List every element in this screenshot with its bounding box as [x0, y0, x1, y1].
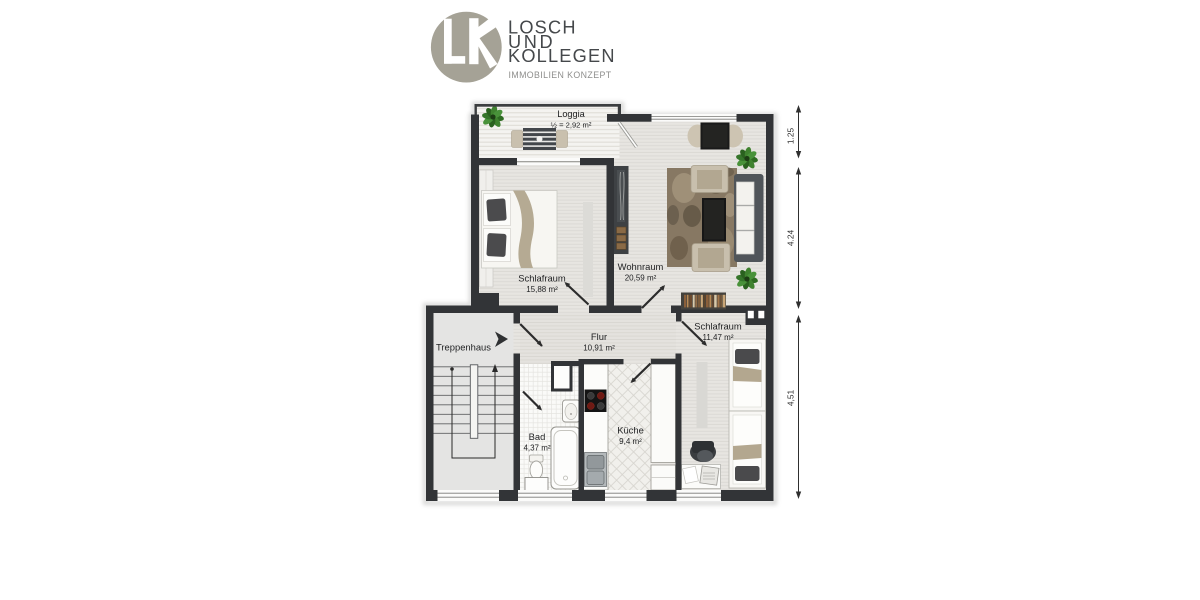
svg-text:Schlafraum: Schlafraum — [518, 273, 566, 284]
svg-text:4,37 m²: 4,37 m² — [523, 444, 550, 453]
svg-text:1.25: 1.25 — [786, 128, 796, 145]
svg-text:Wohnraum: Wohnraum — [618, 261, 664, 272]
svg-text:11,47 m²: 11,47 m² — [703, 333, 734, 342]
svg-text:4,51: 4,51 — [786, 390, 796, 407]
svg-text:10,91 m²: 10,91 m² — [583, 344, 615, 353]
svg-text:½ = 2,92 m²: ½ = 2,92 m² — [551, 121, 592, 130]
svg-text:IMMOBILIEN KONZEPT: IMMOBILIEN KONZEPT — [509, 70, 612, 80]
svg-text:Küche: Küche — [617, 425, 644, 436]
svg-text:Treppenhaus: Treppenhaus — [436, 342, 491, 353]
svg-text:KOLLEGEN: KOLLEGEN — [508, 46, 616, 66]
svg-text:15,88 m²: 15,88 m² — [526, 285, 558, 294]
svg-text:20,59 m²: 20,59 m² — [625, 274, 657, 283]
svg-text:Loggia: Loggia — [557, 109, 585, 119]
svg-text:9,4 m²: 9,4 m² — [619, 437, 642, 446]
svg-text:Bad: Bad — [529, 431, 546, 442]
svg-text:4.24: 4.24 — [786, 230, 796, 247]
svg-text:Flur: Flur — [591, 331, 607, 342]
svg-text:Schlafraum: Schlafraum — [694, 321, 742, 332]
